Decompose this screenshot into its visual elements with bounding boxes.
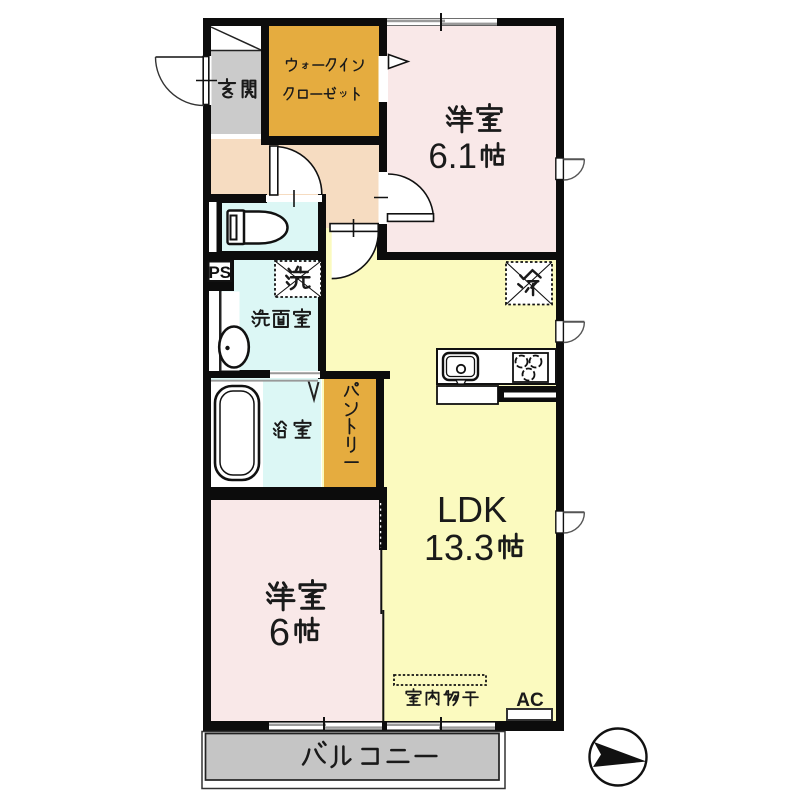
svg-text:13.3: 13.3: [424, 527, 494, 568]
svg-text:PS: PS: [208, 263, 231, 282]
svg-text:6: 6: [269, 612, 290, 654]
svg-text:AC: AC: [516, 690, 544, 711]
svg-text:6.1: 6.1: [428, 137, 477, 176]
svg-text:LDK: LDK: [437, 489, 507, 530]
